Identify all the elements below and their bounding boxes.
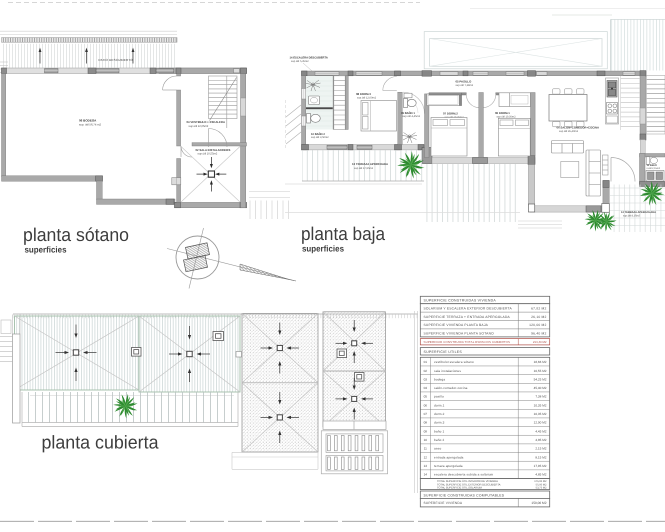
svg-text:150,00 M2: 150,00 M2 [531,501,546,505]
svg-text:12,00 M2: 12,00 M2 [534,421,547,425]
svg-text:sup.útil 12,00m2: sup.útil 12,00m2 [357,97,377,100]
svg-text:planta cubierta: planta cubierta [42,432,160,453]
svg-text:sup.útil 8,15m2: sup.útil 8,15m2 [623,214,641,217]
svg-text:sala instalaciones: sala instalaciones [434,369,461,373]
svg-text:12: 12 [424,455,428,459]
svg-text:SUPERFICIE CONSTRUIDA TOTAL ES: SUPERFICIE CONSTRUIDA TOTAL ESPACIOS CUB… [424,340,511,344]
svg-text:03: 03 [424,377,428,381]
svg-text:08 DORM.3: 08 DORM.3 [356,92,371,96]
svg-text:planta baja: planta baja [301,223,386,244]
svg-text:baño 2: baño 2 [434,438,444,442]
svg-text:pasillo: pasillo [434,395,444,399]
svg-text:escalera descubierta subida a: escalera descubierta subida a solárium [434,473,494,477]
svg-text:4,45 M2: 4,45 M2 [535,429,546,433]
svg-text:SOLARIUM Y ESCALERA EXTERIOR D: SOLARIUM Y ESCALERA EXTERIOR DESCUBIERTA [424,306,513,310]
svg-text:sup.útil 4,45m2: sup.útil 4,45m2 [403,115,421,118]
svg-text:08: 08 [424,421,428,425]
svg-text:dorm.2: dorm.2 [434,412,445,416]
svg-text:sup.útil 5,35m2: sup.útil 5,35m2 [291,60,309,63]
svg-text:sup.útil 45,40m2: sup.útil 45,40m2 [559,130,579,133]
svg-text:PATIO DESCUBIERTO: PATIO DESCUBIERTO [99,58,134,62]
svg-text:96,40 M2: 96,40 M2 [531,331,546,335]
svg-text:10,35 M2: 10,35 M2 [534,412,547,416]
svg-text:7,38 M2: 7,38 M2 [535,395,546,399]
svg-text:02: 02 [424,369,428,373]
svg-text:01: 01 [424,360,428,364]
svg-text:sup.útil 3,50m2: sup.útil 3,50m2 [311,136,329,139]
svg-text:4,85 M2: 4,85 M2 [535,438,546,442]
svg-text:baño 1: baño 1 [434,429,444,433]
svg-text:sup.útil 10,35m2: sup.útil 10,35m2 [497,115,517,118]
svg-text:salón-comedor-cocina: salón-comedor-cocina [434,386,468,390]
svg-text:sup. útil 56,74 m2: sup. útil 56,74 m2 [79,123,102,127]
svg-text:aseo: aseo [434,447,441,451]
svg-text:06 DORM.1: 06 DORM.1 [495,111,510,115]
svg-text:11: 11 [424,447,427,451]
svg-text:07 DORM.2: 07 DORM.2 [443,111,458,115]
svg-text:120,00 M2: 120,00 M2 [529,323,546,327]
svg-text:2,15 M2: 2,15 M2 [535,447,546,451]
svg-text:dorm.3: dorm.3 [434,421,445,425]
svg-text:sup.útil 10,55m2: sup.útil 10,55m2 [198,152,218,155]
svg-text:bodega: bodega [434,377,445,381]
svg-text:SUPERFICIE VIVIENDA PLANTA BAJ: SUPERFICIE VIVIENDA PLANTA BAJA [424,323,489,327]
svg-text:05: 05 [424,395,428,399]
svg-text:04 VESTIBULO + ESCALERA: 04 VESTIBULO + ESCALERA [187,120,225,124]
svg-text:superficies: superficies [302,244,344,254]
svg-text:sup.útil 7,38m2: sup.útil 7,38m2 [456,84,474,87]
svg-text:4,85 M2: 4,85 M2 [535,473,546,477]
svg-text:entrada apergolada: entrada apergolada [434,455,464,459]
svg-text:TOTAL SUPERFICIE ÚTIL SOLARIUM: TOTAL SUPERFICIE ÚTIL SOLARIUM [437,486,482,490]
svg-text:214,40 M2: 214,40 M2 [533,340,547,344]
svg-text:54,25 M2: 54,25 M2 [534,377,547,381]
svg-text:67,82 M2: 67,82 M2 [531,306,546,310]
svg-text:13 TERRAZA APORCHADA: 13 TERRAZA APORCHADA [352,162,388,166]
svg-text:10: 10 [424,438,428,442]
svg-text:53,75 M2: 53,75 M2 [536,487,547,490]
svg-text:04: 04 [424,386,428,390]
svg-text:02 SALA INSTALACIONES: 02 SALA INSTALACIONES [196,148,231,152]
svg-text:09 BAÑO 1: 09 BAÑO 1 [401,111,415,115]
svg-text:06: 06 [424,403,428,407]
svg-text:SUPERFICIE UTILES: SUPERFICIE UTILES [424,350,463,354]
svg-text:s.útil 2,15m2: s.útil 2,15m2 [647,167,661,170]
svg-text:SUPERFICIE TERRAZA + ENTRADA A: SUPERFICIE TERRAZA + ENTRADA APERGOLADA [424,315,511,319]
svg-text:terraza apergolada: terraza apergolada [434,464,463,468]
svg-text:07: 07 [424,412,428,416]
svg-text:vestíbulo+escalera sótano: vestíbulo+escalera sótano [434,360,474,364]
svg-text:45,40 M2: 45,40 M2 [534,386,547,390]
svg-text:planta sótano: planta sótano [23,224,129,245]
svg-text:SUPERFICIE VIVIENDA PLANTA SOT: SUPERFICIE VIVIENDA PLANTA SOTANO [424,331,495,335]
svg-text:18,66 M2: 18,66 M2 [534,360,547,364]
svg-text:13: 13 [424,464,428,468]
svg-text:8,15 M2: 8,15 M2 [535,455,546,459]
svg-text:26,10 M2: 26,10 M2 [531,315,546,319]
svg-text:SUPERFICIE CONSTRUIDAS COMPUTA: SUPERFICIE CONSTRUIDAS COMPUTABLES [424,493,505,497]
svg-text:10,35 M2: 10,35 M2 [534,403,547,407]
svg-text:04 SALON+COMEDOR+COCINA: 04 SALON+COMEDOR+COCINA [557,125,600,129]
svg-text:sup.útil 12,05m2: sup.útil 12,05m2 [189,125,209,128]
svg-text:superficies: superficies [25,245,67,255]
svg-text:10,55 M2: 10,55 M2 [534,369,547,373]
svg-text:SUPERFICIE CONSTRUIDAS VIVIEND: SUPERFICIE CONSTRUIDAS VIVIENDA [424,299,497,303]
svg-text:SUPERFICIE VIVIENDA: SUPERFICIE VIVIENDA [424,501,463,505]
svg-text:09: 09 [424,429,428,433]
svg-text:05 PASILLO: 05 PASILLO [456,80,473,84]
svg-text:sup.útil 17,95m2: sup.útil 17,95m2 [354,167,374,170]
svg-text:17,95 M2: 17,95 M2 [534,464,547,468]
svg-text:14: 14 [424,473,428,477]
svg-text:dorm.1: dorm.1 [434,403,445,407]
